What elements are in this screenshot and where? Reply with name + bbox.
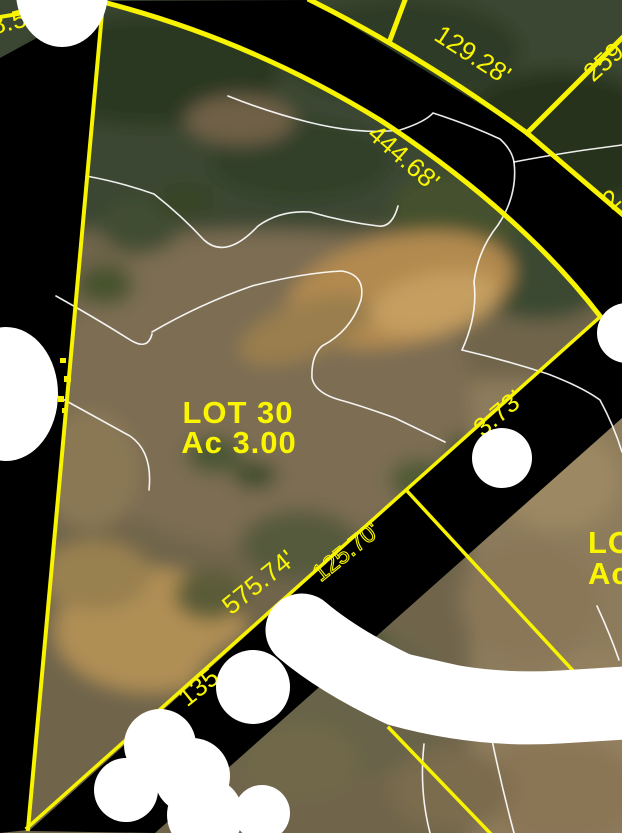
- adjacent-lot-acreage-label: Ac: [588, 556, 622, 591]
- adjacent-lot-name-label: LOT: [588, 525, 622, 560]
- mask-blob-mid-right: [472, 428, 532, 488]
- parcel-map-viewport[interactable]: 8.55' 129.28' 259. 444.68' 2 3.73' 125.7…: [0, 0, 622, 833]
- lot-30-acreage-label: Ac 3.00: [181, 425, 297, 460]
- map-canvas[interactable]: 8.55' 129.28' 259. 444.68' 2 3.73' 125.7…: [0, 0, 622, 833]
- mask-blob-cluster: [94, 758, 158, 822]
- mask-blob-135: [216, 650, 290, 724]
